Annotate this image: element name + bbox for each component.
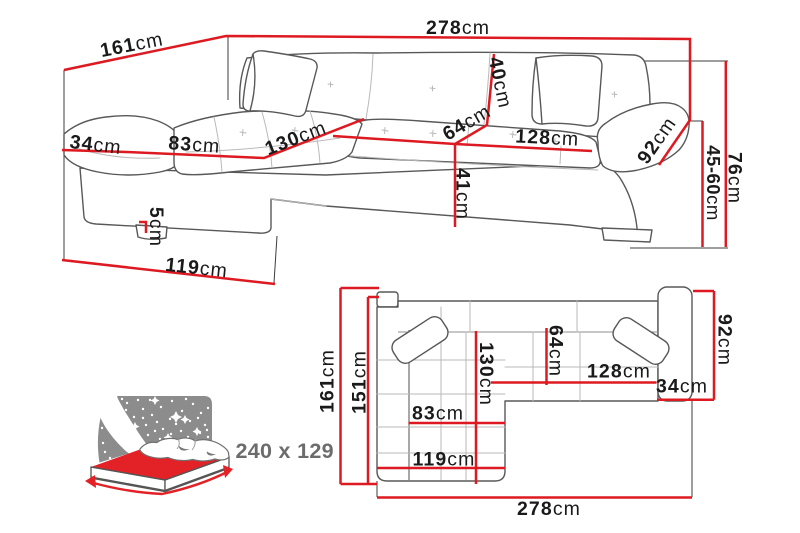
- svg-text:83cm: 83cm: [168, 132, 222, 158]
- svg-text:161cm: 161cm: [317, 349, 339, 413]
- svg-text:41cm: 41cm: [452, 168, 474, 220]
- svg-text:45-60cm: 45-60cm: [703, 145, 724, 221]
- svg-text:119cm: 119cm: [413, 449, 476, 471]
- svg-text:128cm: 128cm: [515, 125, 580, 150]
- svg-text:151cm: 151cm: [349, 350, 371, 414]
- svg-text:278cm: 278cm: [426, 17, 490, 39]
- svg-text:34cm: 34cm: [656, 376, 708, 398]
- svg-text:128cm: 128cm: [587, 361, 651, 383]
- svg-text:92cm: 92cm: [714, 314, 736, 366]
- svg-text:64cm: 64cm: [545, 325, 567, 377]
- svg-text:278cm: 278cm: [517, 498, 581, 520]
- svg-text:5cm: 5cm: [145, 207, 167, 247]
- svg-text:83cm: 83cm: [412, 403, 464, 425]
- svg-text:76cm: 76cm: [724, 152, 746, 204]
- svg-text:240 x 129: 240 x 129: [236, 439, 334, 463]
- svg-text:130cm: 130cm: [475, 342, 497, 406]
